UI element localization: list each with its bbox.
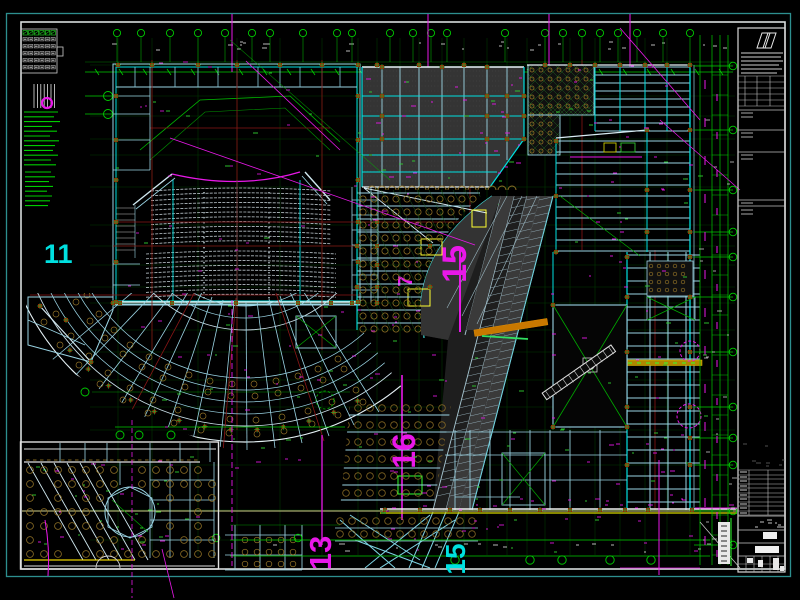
svg-text:13: 13: [303, 536, 338, 570]
svg-text:11: 11: [44, 239, 73, 269]
svg-text:15: 15: [436, 245, 474, 283]
svg-text:16: 16: [386, 433, 422, 469]
svg-text:15: 15: [440, 543, 471, 574]
svg-text:7: 7: [395, 275, 417, 286]
